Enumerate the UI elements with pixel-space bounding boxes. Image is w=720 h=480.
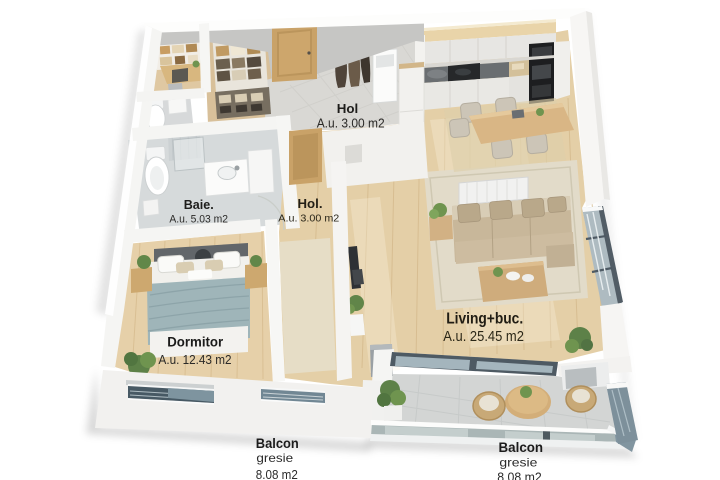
- svg-text:Dormitor: Dormitor: [167, 334, 224, 350]
- svg-text:gresie: gresie: [256, 451, 293, 465]
- svg-text:A.u. 3.00 m2: A.u. 3.00 m2: [278, 213, 339, 225]
- svg-text:A.u. 3.00 m2: A.u. 3.00 m2: [317, 117, 385, 131]
- svg-text:Hol: Hol: [337, 101, 359, 116]
- svg-text:8.08 m2: 8.08 m2: [497, 471, 542, 480]
- svg-text:Hol.: Hol.: [298, 196, 323, 211]
- svg-text:8.08 m2: 8.08 m2: [256, 468, 298, 480]
- svg-text:gresie: gresie: [499, 456, 537, 470]
- svg-text:A.u. 12.43 m2: A.u. 12.43 m2: [159, 352, 232, 367]
- svg-text:A.u. 25.45 m2: A.u. 25.45 m2: [443, 329, 524, 345]
- svg-text:Living+buc.: Living+buc.: [446, 311, 523, 328]
- svg-text:Baie.: Baie.: [184, 197, 214, 212]
- svg-text:Balcon: Balcon: [499, 440, 544, 455]
- svg-text:A.u. 5.03 m2: A.u. 5.03 m2: [169, 214, 228, 226]
- svg-text:Balcon: Balcon: [256, 436, 299, 451]
